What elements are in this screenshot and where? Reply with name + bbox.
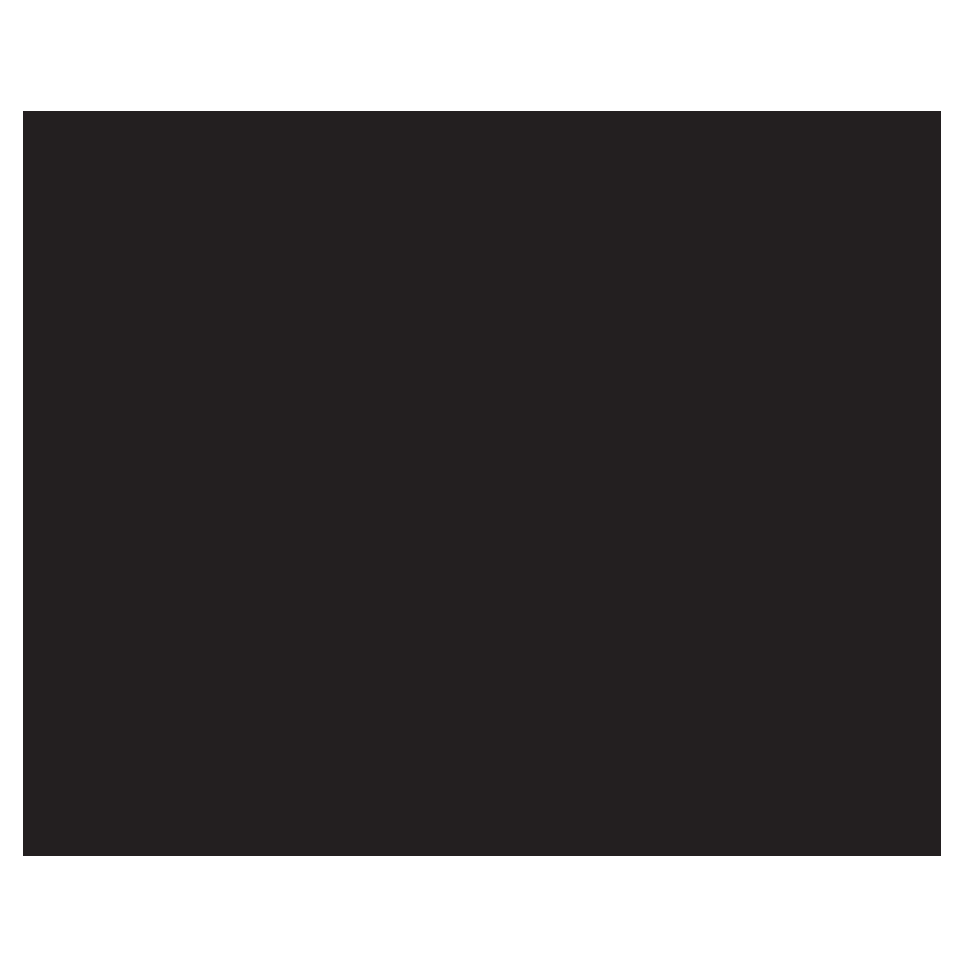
page-background <box>0 0 968 968</box>
blank-dark-screen[interactable] <box>23 111 941 856</box>
